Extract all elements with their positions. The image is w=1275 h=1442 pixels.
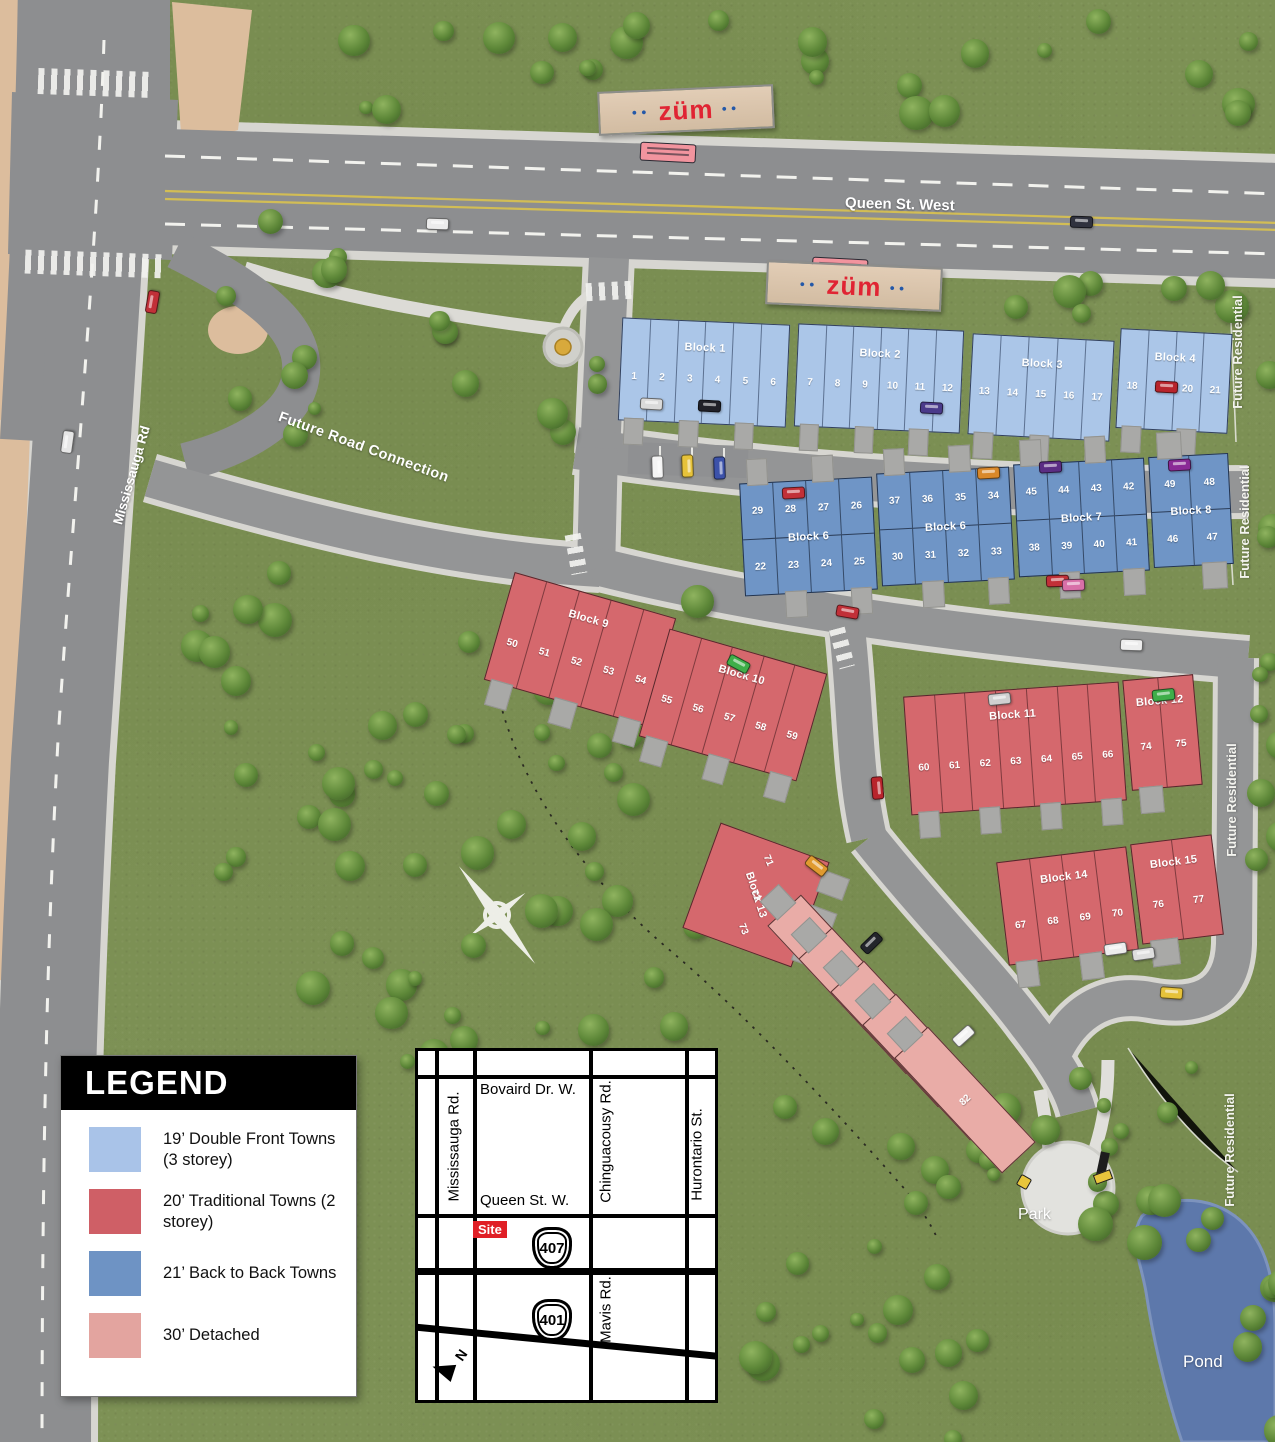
driveway <box>1040 802 1063 830</box>
tree-icon <box>812 1118 839 1145</box>
block-block-15: 7677Block 15 <box>1130 834 1224 944</box>
park-label: Park <box>1018 1206 1051 1224</box>
tree-icon <box>966 1329 988 1351</box>
zum-dots: ●● <box>799 279 818 290</box>
zum-transit-station: ●● züm ●● <box>765 260 943 312</box>
lot-22[interactable]: 22 <box>743 539 779 596</box>
block-block-6: 2928272622232425Block 6 <box>739 477 878 597</box>
tree-icon <box>318 808 351 841</box>
car-icon <box>651 455 664 478</box>
car-icon <box>713 456 726 479</box>
tree-icon <box>458 631 481 654</box>
tree-icon <box>786 1252 809 1275</box>
car-icon <box>681 454 694 477</box>
driveway <box>799 424 820 452</box>
driveway <box>1101 798 1124 826</box>
lot-12[interactable]: 12 <box>932 330 963 432</box>
driveway <box>908 428 929 456</box>
tree-icon <box>756 1302 776 1322</box>
inset-bovaird-label: Bovaird Dr. W. <box>480 1081 576 1098</box>
lot-26[interactable]: 26 <box>839 478 874 535</box>
block-block-2: 789101112Block 2 <box>794 323 964 433</box>
tree-icon <box>224 720 239 735</box>
car-icon <box>698 399 722 412</box>
tree-icon <box>321 256 347 282</box>
tree-icon <box>530 61 553 84</box>
tree-icon <box>587 733 612 758</box>
inset-mavis-label: Mavis Rd. <box>598 1255 615 1365</box>
tree-icon <box>708 10 729 31</box>
car-icon <box>920 401 944 414</box>
tree-icon <box>214 863 233 882</box>
zum-logo: züm <box>658 96 714 124</box>
driveway <box>948 445 971 473</box>
driveway <box>1156 431 1183 459</box>
legend-title: LEGEND <box>61 1056 356 1110</box>
site-marker: Site <box>473 1221 507 1238</box>
driveway <box>1123 568 1146 596</box>
lot-46[interactable]: 46 <box>1152 511 1194 567</box>
tree-icon <box>429 311 449 331</box>
lot-36[interactable]: 36 <box>910 471 946 528</box>
lot-40[interactable]: 40 <box>1082 516 1117 573</box>
tree-icon <box>403 853 427 877</box>
lot-41[interactable]: 41 <box>1114 515 1148 572</box>
car-icon <box>1168 458 1192 471</box>
tree-icon <box>904 1191 928 1215</box>
legend-swatch-back-to-back <box>89 1251 141 1296</box>
north-arrow-icon <box>430 1358 456 1382</box>
lot-32[interactable]: 32 <box>946 525 982 582</box>
lot-29[interactable]: 29 <box>740 483 776 540</box>
tree-icon <box>1161 276 1187 302</box>
car-icon <box>426 218 449 231</box>
lot-9[interactable]: 9 <box>850 327 882 429</box>
lot-35[interactable]: 35 <box>943 469 979 526</box>
zum-dots: ●● <box>721 103 740 114</box>
driveway <box>988 577 1011 605</box>
driveway <box>918 810 941 838</box>
tree-icon <box>568 822 597 851</box>
inset-queen-label: Queen St. W. <box>480 1192 569 1209</box>
car-icon <box>977 466 1001 479</box>
inset-highway-407-line <box>418 1268 715 1275</box>
tree-icon <box>192 605 209 622</box>
tree-icon <box>929 95 960 126</box>
tree-icon <box>403 702 428 727</box>
car-icon <box>782 486 806 499</box>
tree-icon <box>1185 60 1213 88</box>
legend-item-back-to-back: 21’ Back to Back Towns <box>89 1251 338 1296</box>
future-residential-label: Future Residential <box>1222 1070 1256 1230</box>
tree-icon <box>793 1336 809 1352</box>
zum-logo: züm <box>826 272 882 300</box>
zum-dots: ●● <box>631 107 650 118</box>
lot-38[interactable]: 38 <box>1017 520 1052 577</box>
tree-icon <box>424 781 449 806</box>
driveway <box>785 590 808 618</box>
legend-swatch-traditional <box>89 1189 141 1234</box>
tree-icon <box>773 1095 797 1119</box>
lot-39[interactable]: 39 <box>1050 518 1085 575</box>
tree-icon <box>216 286 236 306</box>
pond-label: Pond <box>1183 1352 1223 1372</box>
driveway <box>811 455 834 483</box>
tree-icon <box>961 39 989 67</box>
lot-17[interactable]: 17 <box>1081 340 1113 440</box>
tree-icon <box>588 374 607 393</box>
block-block-11: 60616263646566Block 11 <box>903 682 1127 816</box>
crosswalk <box>25 250 166 279</box>
lot-48[interactable]: 48 <box>1189 454 1230 510</box>
lot-6[interactable]: 6 <box>758 324 789 426</box>
tree-icon <box>548 23 577 52</box>
tree-icon <box>534 724 551 741</box>
tree-icon <box>359 101 372 114</box>
tree-icon <box>258 209 283 234</box>
tree-icon <box>335 851 365 881</box>
lot-25[interactable]: 25 <box>842 534 877 591</box>
tree-icon <box>375 997 407 1029</box>
site-plan-map: N ●● züm ●● ●● züm ●● Queen St. West Mis… <box>0 0 1275 1442</box>
tree-icon <box>579 60 595 76</box>
tree-icon <box>452 370 479 397</box>
car-icon <box>1151 688 1175 702</box>
lot-33[interactable]: 33 <box>979 524 1014 581</box>
lot-37[interactable]: 37 <box>877 473 913 530</box>
driveway <box>882 448 905 476</box>
driveway <box>678 420 699 448</box>
block-block-6: 3736353430313233Block 6 <box>876 467 1015 587</box>
lot-8[interactable]: 8 <box>822 326 854 428</box>
future-residential-label: Future Residential <box>1230 272 1264 432</box>
tree-icon <box>537 398 568 429</box>
zum-dots: ●● <box>889 283 908 294</box>
tree-icon <box>644 967 664 987</box>
car-icon <box>1120 639 1143 652</box>
tree-icon <box>1004 295 1028 319</box>
tree-icon <box>850 1313 863 1326</box>
future-residential-label: Future Residential <box>1224 720 1258 880</box>
lot-23[interactable]: 23 <box>776 537 812 594</box>
tree-icon <box>548 755 564 771</box>
tree-icon <box>604 763 623 782</box>
legend-panel: LEGEND 19’ Double Front Towns (3 storey)… <box>60 1055 357 1397</box>
tree-icon <box>338 25 369 56</box>
tree-icon <box>660 1012 689 1041</box>
tree-icon <box>199 636 230 667</box>
highway-401-shield: 401 <box>532 1299 572 1341</box>
lot-24[interactable]: 24 <box>809 535 845 592</box>
tree-icon <box>1127 1225 1161 1259</box>
tree-icon <box>308 744 325 761</box>
tree-icon <box>525 894 558 927</box>
lot-42[interactable]: 42 <box>1112 459 1146 516</box>
tree-icon <box>812 1325 829 1342</box>
tree-icon <box>936 1175 960 1199</box>
lot-30[interactable]: 30 <box>880 529 916 586</box>
tree-icon <box>1086 9 1111 34</box>
legend-item-traditional: 20’ Traditional Towns (2 storey) <box>89 1189 338 1234</box>
highway-407-shield: 407 <box>532 1227 572 1269</box>
tree-icon <box>364 760 383 779</box>
legend-swatch-detached <box>89 1313 141 1358</box>
driveway <box>623 418 644 446</box>
inset-road-queen <box>418 1214 715 1218</box>
tree-icon <box>798 27 828 57</box>
tree-icon <box>924 1264 950 1290</box>
block-block-7: 4544434238394041Block 7 <box>1013 458 1150 578</box>
tree-icon <box>1185 1061 1198 1074</box>
tree-icon <box>497 810 526 839</box>
tree-icon <box>1201 1207 1224 1230</box>
block-block-3: 1314151617Block 3 <box>967 333 1114 441</box>
lot-43[interactable]: 43 <box>1079 460 1114 517</box>
tree-icon <box>1097 1098 1111 1112</box>
tree-icon <box>233 595 263 625</box>
lot-47[interactable]: 47 <box>1192 509 1233 565</box>
lot-27[interactable]: 27 <box>806 479 842 536</box>
tree-icon <box>617 783 650 816</box>
lot-31[interactable]: 31 <box>913 527 949 584</box>
inset-mississauga-label: Mississauga Rd. <box>446 1062 463 1232</box>
tree-icon <box>949 1381 978 1410</box>
driveway <box>1202 561 1229 589</box>
queen-street-label: Queen St. West <box>845 195 955 215</box>
tree-icon <box>461 836 494 869</box>
tree-icon <box>578 1014 609 1045</box>
tree-icon <box>897 73 922 98</box>
tree-icon <box>1196 271 1225 300</box>
legend-item-detached: 30’ Detached <box>89 1313 338 1358</box>
driveway <box>972 432 993 460</box>
driveway <box>1015 959 1041 989</box>
inset-chinguacousy-label: Chinguacousy Rd. <box>598 1057 615 1227</box>
tree-icon <box>681 585 713 617</box>
tree-icon <box>1078 1207 1112 1241</box>
car-icon <box>1155 380 1179 393</box>
inset-north-arrow: N <box>432 1347 472 1387</box>
tree-icon <box>868 1323 887 1342</box>
lot-11[interactable]: 11 <box>905 329 937 431</box>
crosswalk <box>586 281 633 301</box>
driveway <box>922 580 945 608</box>
tree-icon <box>221 666 251 696</box>
driveway <box>1139 785 1165 814</box>
tree-icon <box>228 386 252 410</box>
tree-icon <box>296 971 330 1005</box>
future-residential-label: Future Residential <box>1237 442 1271 602</box>
legend-swatch-double-front <box>89 1127 141 1172</box>
tree-icon <box>368 711 397 740</box>
car-icon <box>1062 579 1085 592</box>
tree-icon <box>883 1295 913 1325</box>
tree-icon <box>535 1021 550 1036</box>
crosswalk <box>38 68 154 98</box>
lot-10[interactable]: 10 <box>877 328 909 430</box>
driveway <box>979 806 1002 834</box>
zum-transit-station: ●● züm ●● <box>597 84 775 136</box>
tree-icon <box>1031 1115 1061 1145</box>
inset-road-bovaird <box>418 1075 715 1079</box>
driveway <box>1120 425 1141 453</box>
tree-icon <box>444 1007 461 1024</box>
car-icon <box>1070 216 1093 229</box>
car-icon <box>640 397 664 410</box>
block-block-8: 49484647Block 8 <box>1148 453 1234 568</box>
location-inset-map: Bovaird Dr. W. Queen St. W. Mississauga … <box>415 1048 718 1403</box>
tree-icon <box>1148 1184 1181 1217</box>
tree-icon <box>887 1133 915 1161</box>
lot-21[interactable]: 21 <box>1200 334 1232 433</box>
driveway <box>1079 951 1105 981</box>
car-icon <box>871 776 885 800</box>
tree-icon <box>1240 1305 1266 1331</box>
tree-icon <box>322 767 355 800</box>
tree-icon <box>864 1409 884 1429</box>
tree-icon <box>1072 304 1091 323</box>
tree-icon <box>267 561 291 585</box>
legend-item-double-front: 19’ Double Front Towns (3 storey) <box>89 1127 338 1172</box>
zum-bus-icon <box>640 142 697 164</box>
car-icon <box>1039 460 1063 473</box>
tree-icon <box>258 603 292 637</box>
lot-5[interactable]: 5 <box>730 323 762 425</box>
tree-icon <box>1069 1067 1091 1089</box>
tree-icon <box>408 971 422 985</box>
lot-7[interactable]: 7 <box>795 324 827 426</box>
tree-icon <box>944 1430 962 1442</box>
inset-hurontario-label: Hurontario St. <box>689 1080 706 1230</box>
car-icon <box>1160 986 1184 1000</box>
driveway <box>1084 436 1107 464</box>
tree-icon <box>234 763 258 787</box>
driveway <box>745 458 768 486</box>
car-icon <box>987 692 1011 706</box>
tree-icon <box>585 862 604 881</box>
driveway <box>853 426 874 454</box>
driveway <box>733 422 754 450</box>
